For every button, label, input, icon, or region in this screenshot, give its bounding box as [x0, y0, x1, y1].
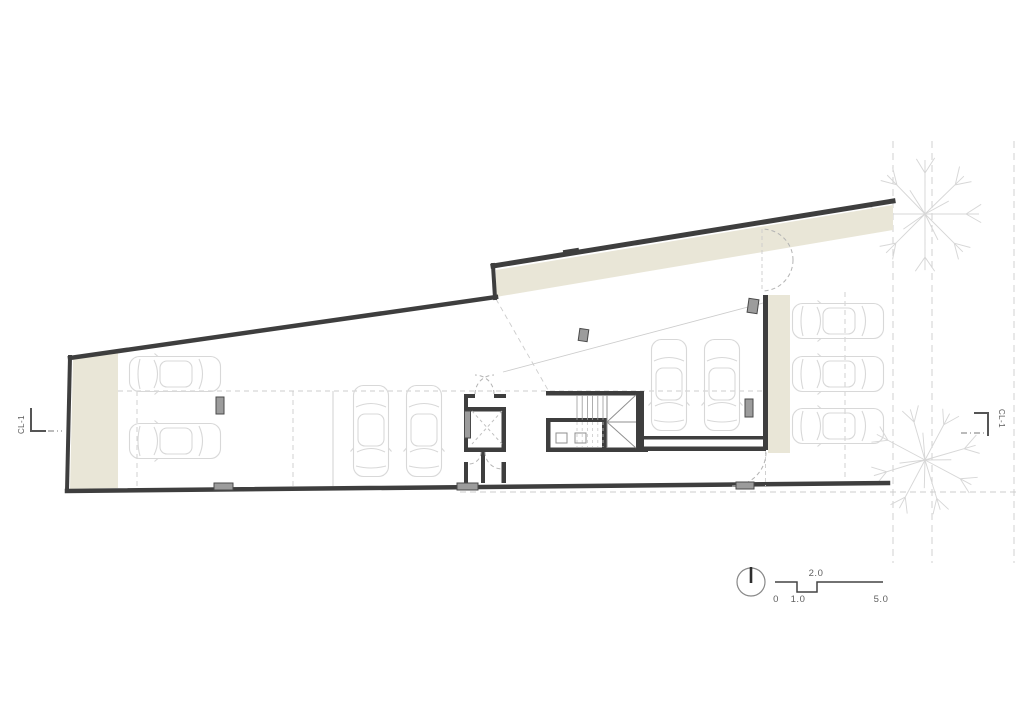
door-swing [485, 452, 502, 469]
equipment-box [556, 433, 567, 443]
scale-label-0: 0 [773, 594, 779, 605]
band-right [768, 295, 790, 453]
band-top [496, 205, 893, 297]
north-indicator [737, 567, 765, 596]
band-left [70, 353, 118, 489]
section-label-right: CL-1 [997, 409, 1006, 428]
scale-label-5: 5.0 [874, 594, 889, 605]
car-plan-symbol [404, 386, 445, 477]
car-plan-symbol [351, 386, 392, 477]
stair [546, 391, 648, 452]
door-swing [732, 452, 766, 486]
lot-boundary-lines [460, 141, 1016, 563]
stair-treads [577, 395, 603, 420]
car-plan-symbol [793, 406, 884, 447]
car-plan-symbol [130, 354, 221, 395]
scale-label-2: 2.0 [809, 568, 824, 579]
car-plan-symbol [793, 301, 884, 342]
door-swing [469, 452, 481, 464]
section-marker-right: CL-1 [961, 409, 1006, 436]
car-plan-symbol [130, 421, 221, 462]
section-label-left: CL-1 [17, 415, 26, 434]
wall-finish-bands [70, 205, 893, 489]
car-plan-symbol [702, 340, 743, 431]
scale-bar-line [775, 582, 883, 592]
door-swing [762, 260, 793, 291]
stair-landing-cross [607, 395, 636, 448]
floor-plan-drawing: CL-1 CL-1 0 1.0 2.0 5.0 [0, 0, 1024, 720]
section-marker-left: CL-1 [17, 408, 62, 434]
car-plan-symbol [649, 340, 690, 431]
elevator-door-panel [465, 411, 471, 438]
scale-bar: 0 1.0 2.0 5.0 [773, 568, 888, 605]
car-plan-symbol [793, 354, 884, 395]
floor-plan-canvas: CL-1 CL-1 0 1.0 2.0 5.0 [0, 0, 1024, 720]
scale-label-1: 1.0 [791, 594, 806, 605]
low-wall [644, 436, 766, 451]
